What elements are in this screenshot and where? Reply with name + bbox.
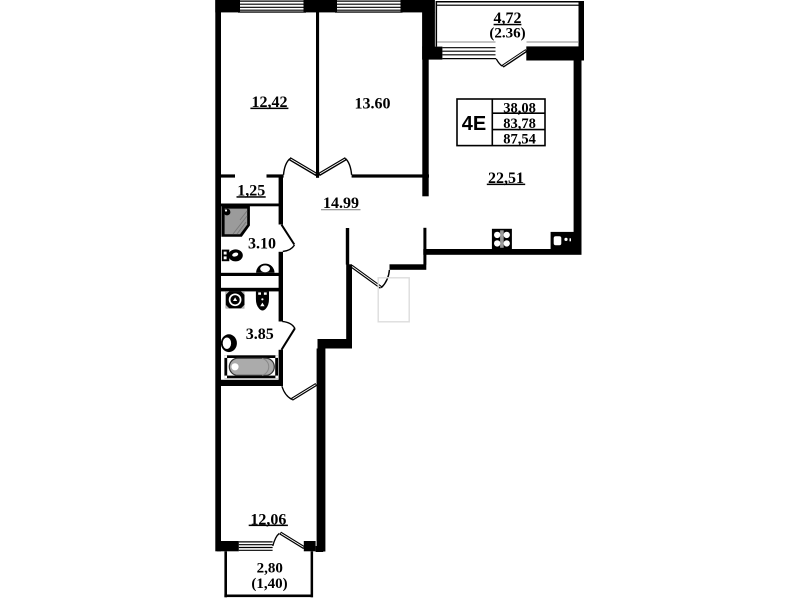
svg-text:4E: 4E — [462, 113, 486, 135]
svg-text:3.10: 3.10 — [248, 235, 276, 252]
svg-text:87,54: 87,54 — [503, 132, 536, 148]
svg-text:2,80: 2,80 — [257, 560, 283, 576]
svg-text:3.85: 3.85 — [246, 326, 274, 343]
svg-text:13.60: 13.60 — [355, 95, 391, 112]
svg-text:(1,40): (1,40) — [251, 576, 287, 592]
svg-text:83,78: 83,78 — [503, 116, 536, 132]
svg-text:(2.36): (2.36) — [489, 25, 525, 41]
svg-text:38,08: 38,08 — [503, 100, 536, 116]
